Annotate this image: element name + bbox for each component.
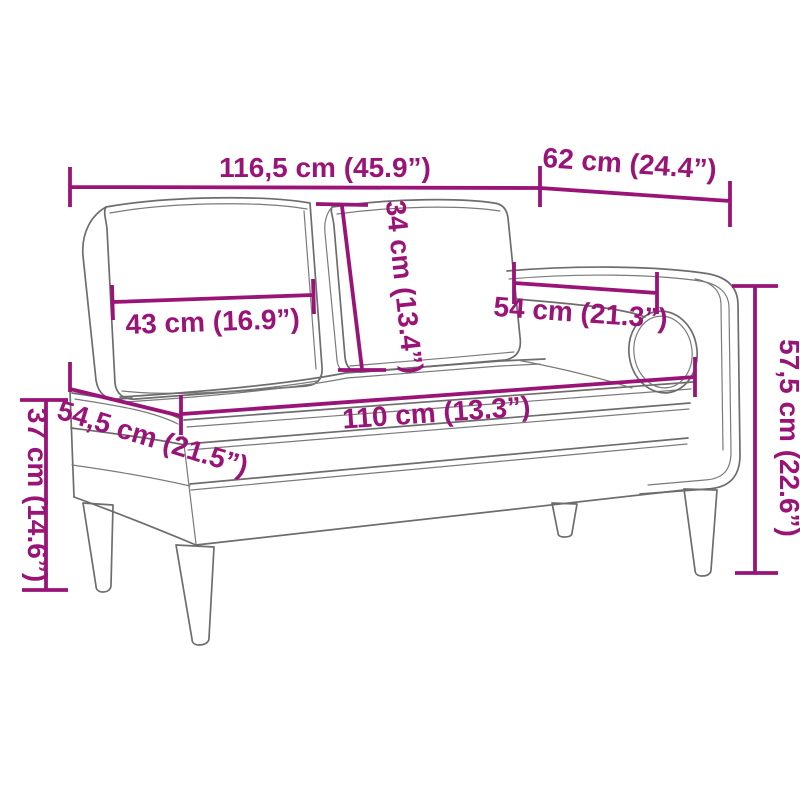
dim-seat-length-label: 110 cm (13.3”) bbox=[341, 390, 531, 434]
dim-total-width-label: 116,5 cm (45.9”) bbox=[219, 152, 431, 183]
dim-seat-length: 110 cm (13.3”) bbox=[181, 357, 695, 435]
dim-leg-height: 37 cm (14.6”) bbox=[20, 400, 68, 590]
dim-right-cushion-width: 54 cm (21.3”) bbox=[493, 262, 669, 334]
dim-leg-height-label: 37 cm (14.6”) bbox=[22, 408, 53, 582]
base-rail-seam-b-inner bbox=[191, 444, 687, 490]
dim-total-width: 116,5 cm (45.9”) bbox=[70, 152, 540, 207]
chaise-lounge-diagram-svg: 116,5 cm (45.9”) 62 cm (24.4”) 34 cm (13… bbox=[0, 0, 800, 800]
base-rail-seam-b bbox=[190, 438, 688, 484]
base-left-band-b bbox=[72, 465, 190, 486]
base-bottom-edge bbox=[196, 490, 684, 545]
right-back-cushion-bottom-fold bbox=[350, 352, 514, 366]
armrest-panel-seam bbox=[695, 279, 723, 450]
dim-armrest-width-label: 62 cm (24.4”) bbox=[542, 142, 718, 185]
dim-left-cushion-width: 43 cm (16.9”) bbox=[112, 279, 314, 340]
dim-left-cushion-width-label: 43 cm (16.9”) bbox=[125, 303, 300, 340]
back-left-leg bbox=[83, 503, 113, 592]
dim-armrest-width: 62 cm (24.4”) bbox=[540, 142, 730, 227]
dim-seat-depth: 54,5 cm (21.5”) bbox=[54, 362, 252, 482]
dimension-diagram: 116,5 cm (45.9”) 62 cm (24.4”) 34 cm (13… bbox=[0, 0, 800, 800]
dim-total-height: 57,5 cm (22.6”) bbox=[732, 286, 800, 573]
dim-cushion-height: 34 cm (13.4”) bbox=[316, 199, 429, 376]
dim-cushion-height-line bbox=[316, 204, 386, 370]
dim-total-height-label: 57,5 cm (22.6”) bbox=[774, 339, 800, 537]
dim-armrest-width-line bbox=[540, 181, 730, 227]
legs bbox=[83, 489, 717, 645]
front-right-leg bbox=[684, 489, 717, 576]
right-back-cushion-top-seam bbox=[337, 207, 500, 214]
dim-cushion-height-label: 34 cm (13.4”) bbox=[380, 199, 429, 376]
back-right-leg bbox=[552, 503, 577, 537]
front-left-leg bbox=[176, 545, 214, 645]
left-back-cushion-top-seam bbox=[110, 204, 307, 213]
